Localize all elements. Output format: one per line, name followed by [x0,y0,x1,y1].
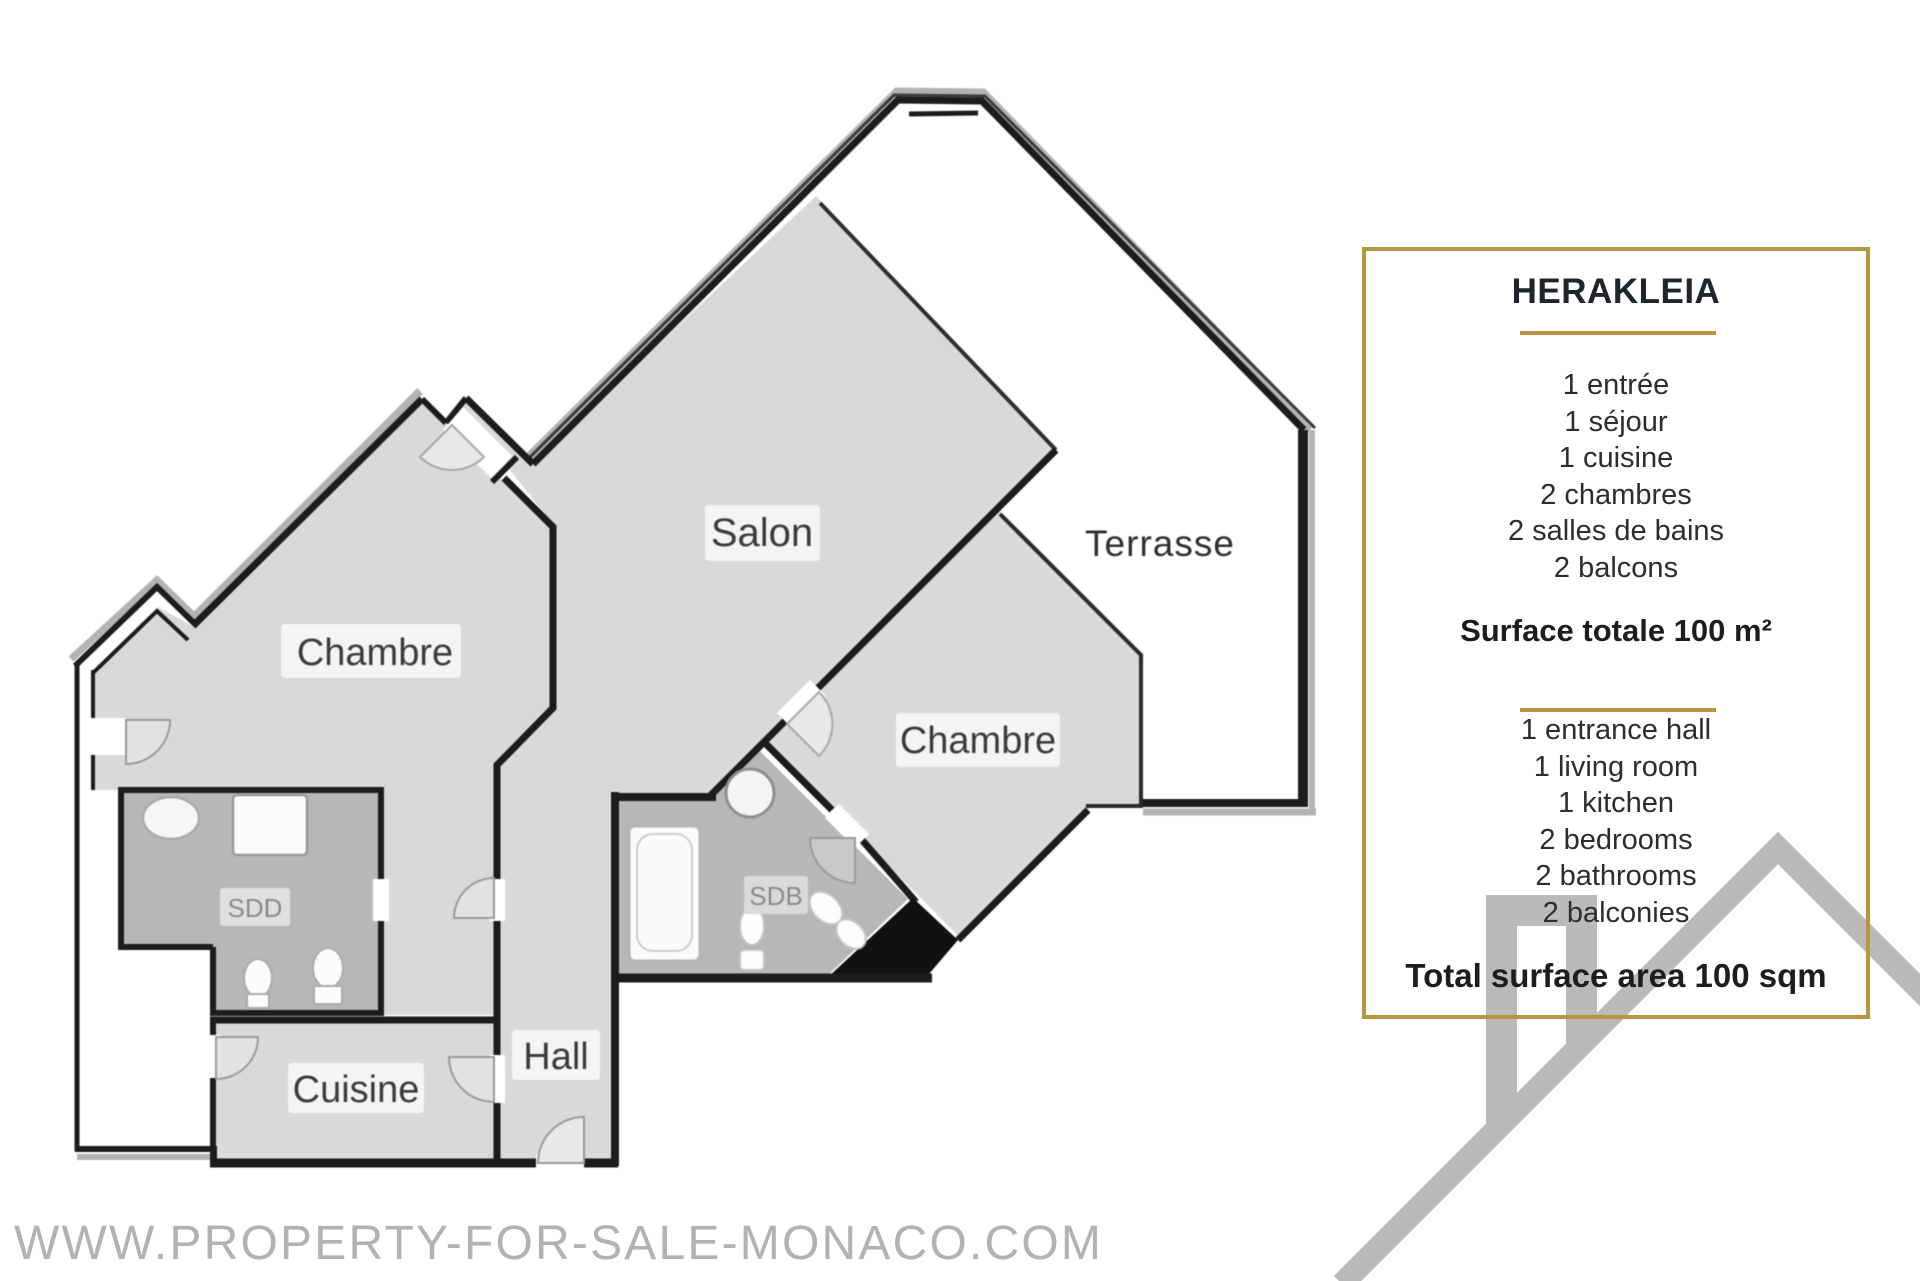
svg-text:SDD: SDD [228,893,283,923]
svg-text:Hall: Hall [523,1036,588,1078]
svg-text:SDB: SDB [749,881,802,911]
svg-text:Salon: Salon [711,511,813,555]
svg-text:Chambre: Chambre [900,720,1056,762]
svg-text:Cuisine: Cuisine [293,1069,420,1111]
svg-text:Terrasse: Terrasse [1085,523,1235,564]
svg-text:Chambre: Chambre [297,632,453,674]
